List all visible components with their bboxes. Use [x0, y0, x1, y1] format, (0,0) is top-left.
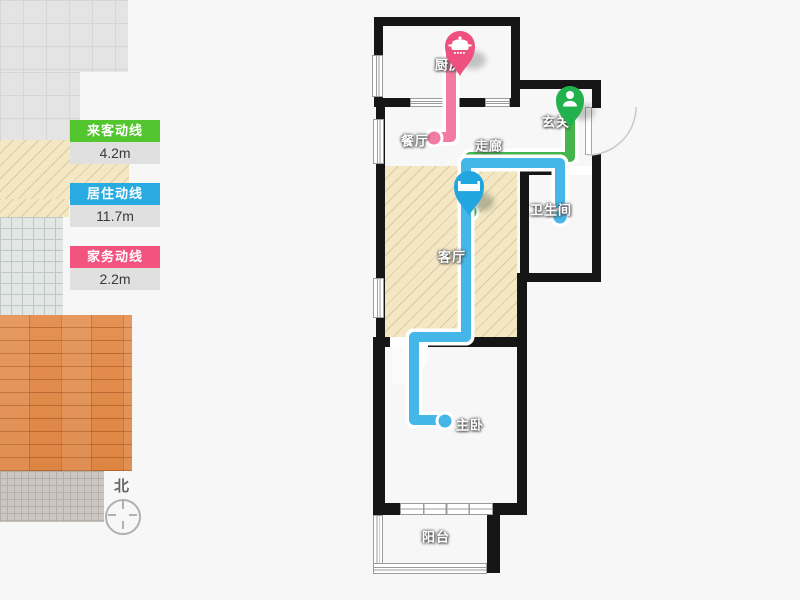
person-icon	[563, 91, 577, 107]
floor-plan-viewer: 来客动线 4.2m 居住动线 11.7m 家务动线 2.2m 北	[0, 0, 800, 600]
wall-entry-top	[511, 80, 601, 89]
balcony-left-window	[373, 515, 383, 565]
entry-floor	[0, 199, 69, 217]
wall-bathroom-left	[520, 166, 529, 282]
kitchen-floor	[0, 0, 128, 72]
kitchen-pin-shadow	[460, 51, 486, 69]
legend-resident-label: 居住动线	[70, 183, 160, 205]
balcony-bottom-window	[373, 563, 487, 574]
legend-resident-value: 11.7m	[70, 205, 160, 227]
wall-right-upper	[592, 80, 601, 108]
living-label: 客厅	[438, 247, 466, 266]
compass: 北	[103, 495, 143, 535]
wall-bathroom-top	[520, 166, 562, 175]
bedroom-door-opening	[390, 337, 428, 347]
bathroom-floor	[0, 217, 63, 315]
legend-resident-flow: 居住动线 11.7m	[70, 183, 160, 227]
wall-kitchen-right	[511, 17, 520, 107]
dining-floor	[0, 72, 80, 140]
flow-legend: 来客动线 4.2m 居住动线 11.7m 家务动线 2.2m	[70, 120, 160, 309]
compass-tick-east	[129, 514, 137, 516]
dining-label: 餐厅	[401, 131, 429, 150]
wall-living-right	[517, 273, 527, 515]
legend-guest-flow: 来客动线 4.2m	[70, 120, 160, 164]
kitchen-pass-window	[485, 98, 510, 107]
compass-north-label: 北	[114, 475, 129, 496]
entry-door-arc	[588, 107, 636, 155]
legend-housework-flow: 家务动线 2.2m	[70, 246, 160, 290]
entry-door-leaf	[585, 107, 592, 155]
kitchen-window	[372, 55, 383, 97]
wall-bedroom-divider-right	[428, 337, 527, 347]
bedroom-door-arc	[392, 347, 430, 385]
compass-tick-north	[122, 501, 124, 509]
legend-guest-value: 4.2m	[70, 142, 160, 164]
kitchen-sliding-door	[410, 98, 448, 107]
compass-tick-west	[108, 514, 116, 516]
bedroom-label: 主卧	[456, 415, 484, 434]
bathroom-label: 卫生间	[530, 200, 572, 219]
wall-bedroom-left	[373, 345, 385, 512]
pot-icon	[449, 36, 472, 53]
dining-window	[373, 119, 384, 164]
wall-kitchen-top	[374, 17, 520, 26]
wall-bedroom-bottom-left	[373, 503, 400, 515]
living-window	[373, 278, 384, 318]
entry-label: 玄关	[542, 112, 570, 131]
balcony-floor	[0, 471, 104, 522]
legend-housework-value: 2.2m	[70, 268, 160, 290]
wall-bathroom-bottom	[520, 273, 601, 282]
balcony-sliding-door	[400, 503, 493, 515]
legend-housework-label: 家务动线	[70, 246, 160, 268]
balcony-label: 阳台	[422, 527, 450, 546]
bathroom-door-opening	[562, 166, 592, 175]
compass-tick-south	[122, 521, 124, 529]
bedroom-floor	[0, 315, 132, 471]
kitchen-label: 厨房	[435, 55, 463, 74]
wall-right-mid	[592, 154, 601, 282]
resident-line-endpoint-bedroom	[437, 413, 453, 429]
corridor-label: 走廊	[475, 136, 503, 155]
legend-guest-label: 来客动线	[70, 120, 160, 142]
